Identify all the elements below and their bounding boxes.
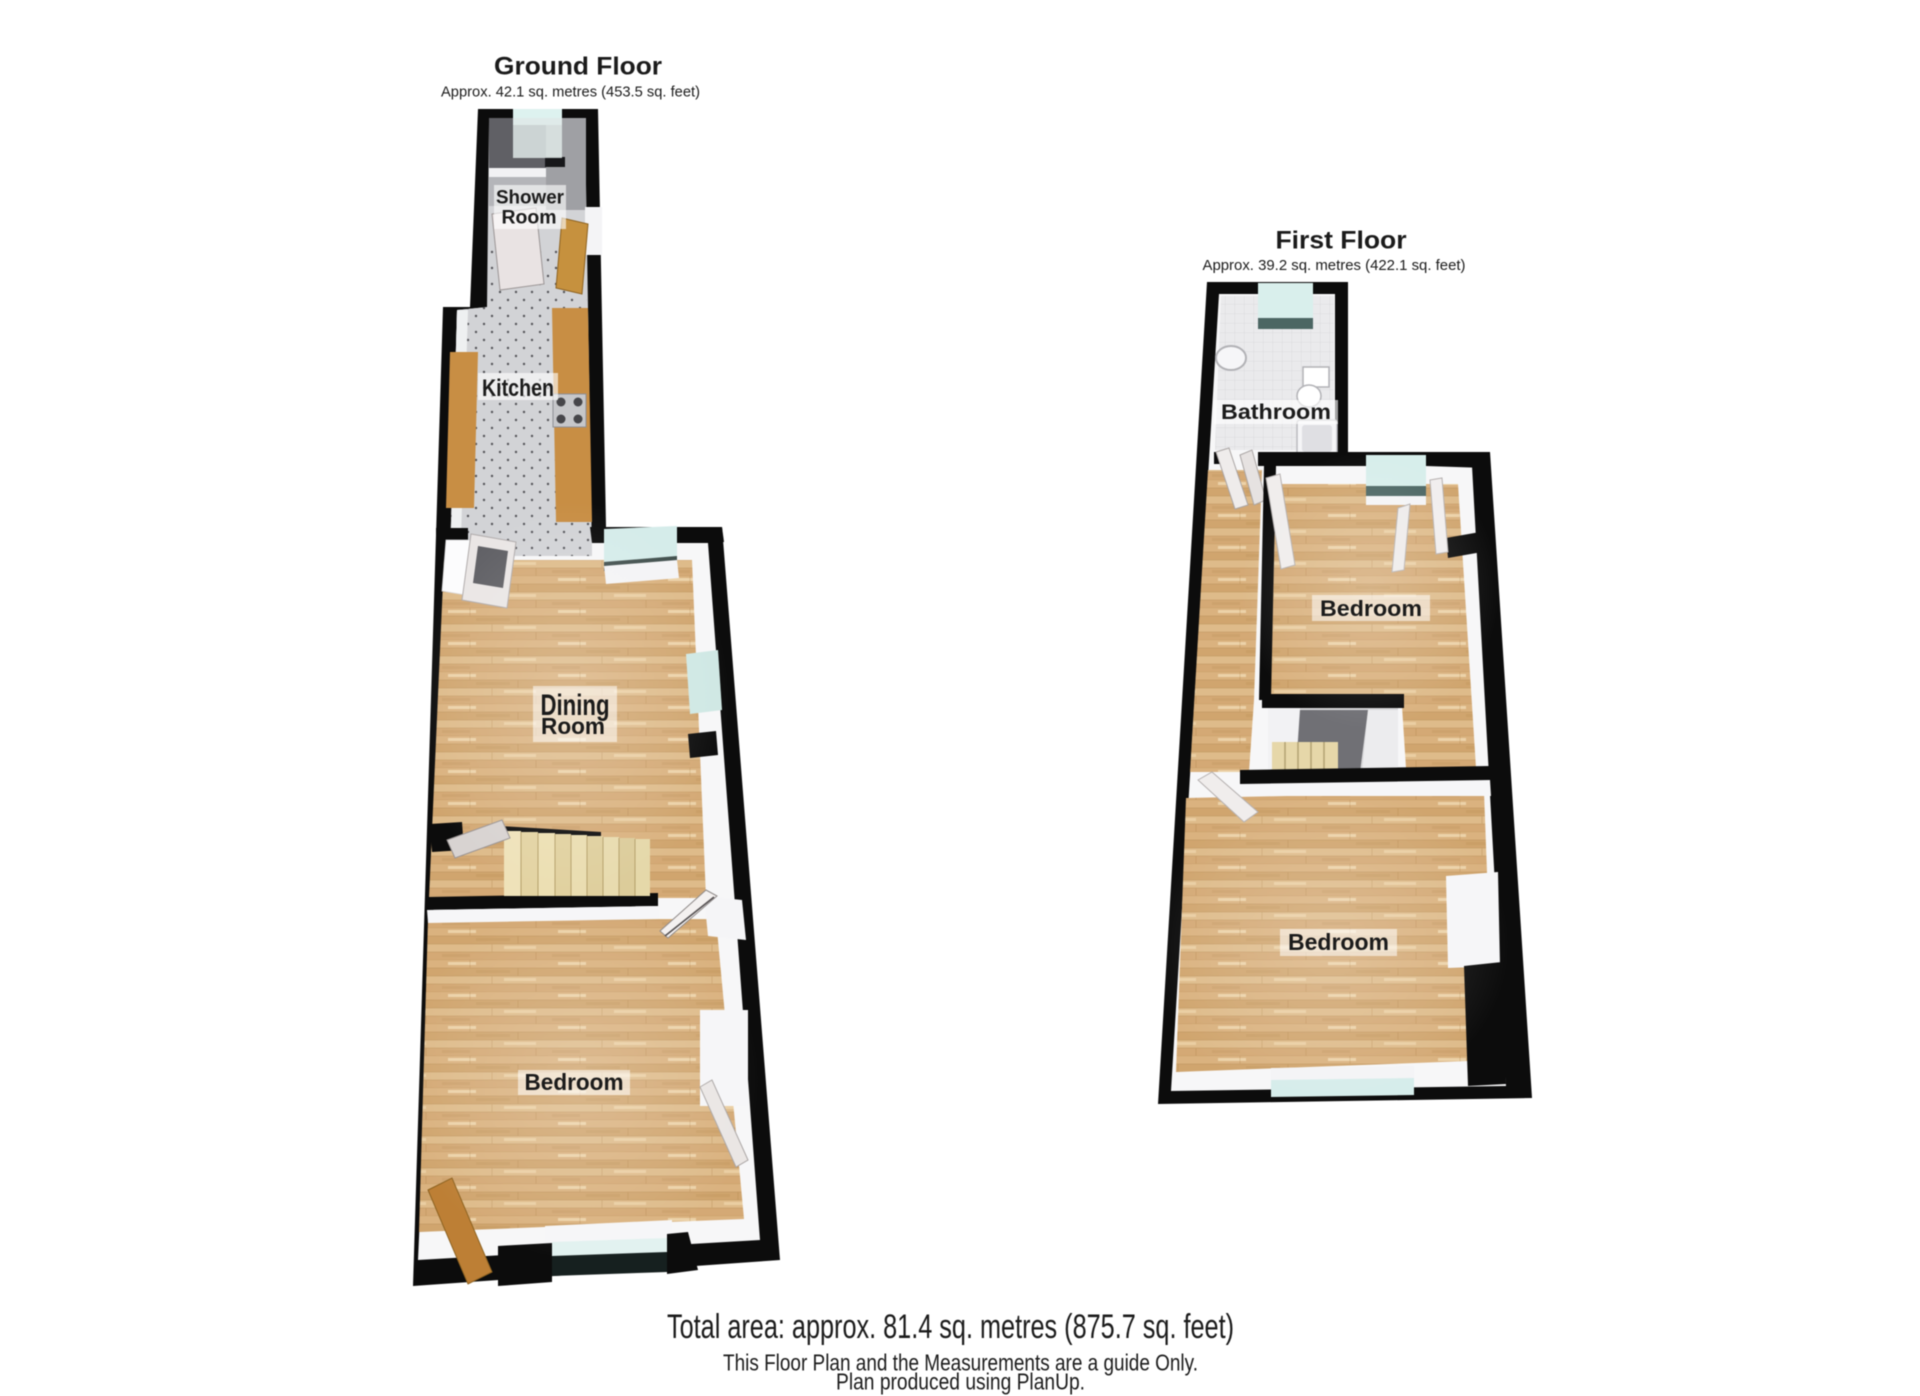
svg-text:Plan produced using PlanUp.: Plan produced using PlanUp. xyxy=(836,1369,1085,1395)
svg-text:Ground Floor: Ground Floor xyxy=(494,53,662,81)
svg-text:Room: Room xyxy=(502,208,557,229)
svg-text:Bedroom: Bedroom xyxy=(525,1069,624,1095)
svg-text:Approx. 39.2 sq. metres (422.1: Approx. 39.2 sq. metres (422.1 sq. feet) xyxy=(1203,257,1466,274)
svg-text:Approx. 42.1 sq. metres (453.5: Approx. 42.1 sq. metres (453.5 sq. feet) xyxy=(441,84,700,101)
svg-text:Bedroom: Bedroom xyxy=(1288,929,1389,955)
svg-text:Bathroom: Bathroom xyxy=(1221,401,1331,424)
svg-text:Bedroom: Bedroom xyxy=(1320,596,1422,621)
svg-text:First Floor: First Floor xyxy=(1276,227,1407,255)
svg-text:Shower: Shower xyxy=(496,188,565,209)
svg-text:Kitchen: Kitchen xyxy=(482,375,554,402)
svg-text:Total area: approx. 81.4 sq. m: Total area: approx. 81.4 sq. metres (875… xyxy=(667,1308,1234,1346)
svg-text:Room: Room xyxy=(541,713,605,739)
